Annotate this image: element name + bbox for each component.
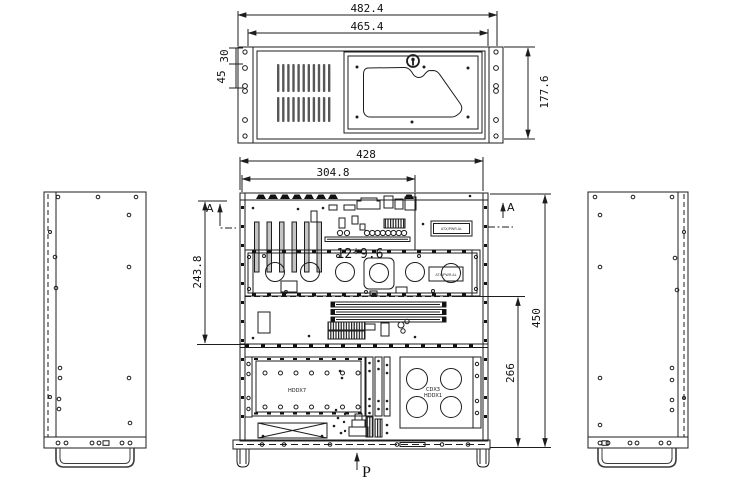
rear-wall-tabs (256, 195, 414, 200)
top-view (233, 193, 490, 470)
right-bottom-rail (598, 441, 671, 446)
foot-left (237, 449, 249, 467)
section-a-right-label: A (507, 201, 515, 214)
fan-hole (406, 263, 425, 282)
ram-slots (331, 302, 446, 322)
dim-overall-width-label: 482.4 (350, 2, 383, 15)
dim-ear-45-label: 45 (215, 70, 228, 83)
door-cutout (364, 68, 462, 118)
load-arrow-label: P (362, 464, 371, 481)
fan-hole (370, 264, 389, 283)
right-side-holes (593, 195, 685, 427)
left-side-view (44, 192, 146, 467)
front-view (229, 47, 503, 143)
section-marker-left (220, 204, 236, 228)
motherboard-area (252, 302, 446, 339)
front-rack-ear-right (489, 47, 503, 143)
chassis-technical-drawing: 482.4 465.4 30 45 177.6 428 304.8 A A 24… (0, 0, 738, 498)
ear-dim-ticks (229, 48, 243, 88)
front-door-plate (344, 52, 482, 133)
rear-plate-label: ATX/PWR.AL (441, 227, 462, 231)
left-side-holes (49, 195, 138, 425)
vent-grille (277, 64, 330, 122)
fan-hole (336, 263, 355, 282)
dim-ear-30-label: 30 (218, 49, 231, 62)
right-side-view (588, 192, 688, 467)
fan-frame (364, 258, 394, 289)
motherboard-size-label: 12*9.6 (337, 247, 384, 262)
dim-mount-width-label: 465.4 (350, 20, 383, 33)
drawing-canvas: 482.4 465.4 30 45 177.6 428 304.8 A A 24… (0, 0, 738, 498)
ear-holes-left (243, 50, 248, 138)
plate-screw-dots (356, 66, 470, 124)
left-bottom-rail (56, 441, 132, 446)
foot-right (477, 449, 489, 467)
cd-bay-label-line2: HDDX1 (424, 393, 442, 399)
right-handle (598, 448, 676, 467)
section-a-left-label: A (206, 202, 214, 215)
dim-height-label: 177.6 (538, 75, 551, 108)
dim-front-depth-label: 266 (504, 363, 517, 383)
ear-holes-right (494, 50, 499, 138)
keylock-icon (407, 55, 419, 67)
dim-rear-depth-label: 243.8 (191, 255, 204, 288)
center-rails (366, 357, 390, 437)
left-handle (56, 448, 134, 467)
mid-plate-label: ATX/PWR.AL (435, 273, 456, 277)
dim-board-width-label: 304.8 (316, 166, 349, 179)
dim-top-width-label: 428 (356, 148, 376, 161)
rear-io-cluster (252, 195, 472, 242)
dim-depth-label: 450 (530, 308, 543, 328)
hdd-bay-label: HDDX7 (288, 388, 306, 394)
hdd-cage-holes (263, 371, 360, 409)
crossed-box (258, 423, 327, 438)
expansion-slots (255, 222, 322, 272)
front-rack-ear-left (238, 47, 253, 143)
